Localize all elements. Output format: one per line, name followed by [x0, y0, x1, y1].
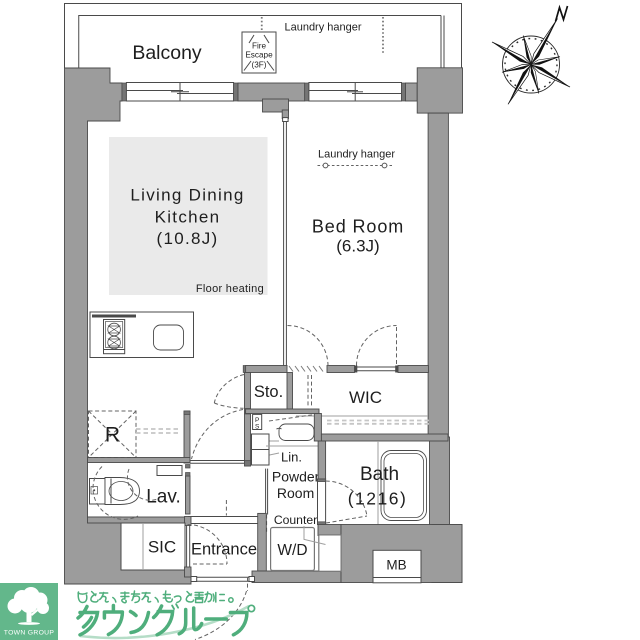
svg-text:(6.3J): (6.3J) — [336, 237, 379, 256]
svg-text:(3F): (3F) — [251, 61, 266, 70]
svg-text:Living Dining: Living Dining — [130, 186, 244, 205]
svg-text:Bath: Bath — [360, 464, 399, 485]
svg-text:Laundry hanger: Laundry hanger — [318, 149, 395, 161]
svg-text:Floor heating: Floor heating — [196, 283, 264, 295]
svg-text:R: R — [105, 424, 120, 447]
svg-text:WIC: WIC — [349, 388, 382, 407]
svg-text:MB: MB — [386, 558, 406, 573]
svg-text:Laundry hanger: Laundry hanger — [284, 22, 361, 34]
svg-text:Room: Room — [277, 485, 314, 501]
svg-text:Fire: Fire — [252, 42, 267, 51]
svg-text:Bed Room: Bed Room — [312, 217, 404, 237]
svg-text:Lin.: Lin. — [281, 450, 302, 465]
svg-text:S: S — [255, 424, 260, 431]
svg-text:TOWN GROUP: TOWN GROUP — [4, 630, 55, 637]
svg-text:W/D: W/D — [277, 542, 307, 559]
svg-text:Kitchen: Kitchen — [155, 208, 221, 227]
svg-text:Powder: Powder — [272, 468, 320, 484]
svg-text:(1216): (1216) — [348, 489, 408, 509]
svg-text:Escape: Escape — [245, 51, 273, 60]
svg-text:(10.8J): (10.8J) — [156, 229, 218, 248]
svg-text:Counter: Counter — [274, 513, 317, 527]
svg-text:Balcony: Balcony — [132, 42, 202, 64]
svg-text:Sto.: Sto. — [254, 383, 283, 401]
svg-text:SIC: SIC — [148, 538, 176, 557]
svg-text:Entrance: Entrance — [191, 541, 257, 559]
svg-text:Lav.: Lav. — [146, 487, 181, 508]
